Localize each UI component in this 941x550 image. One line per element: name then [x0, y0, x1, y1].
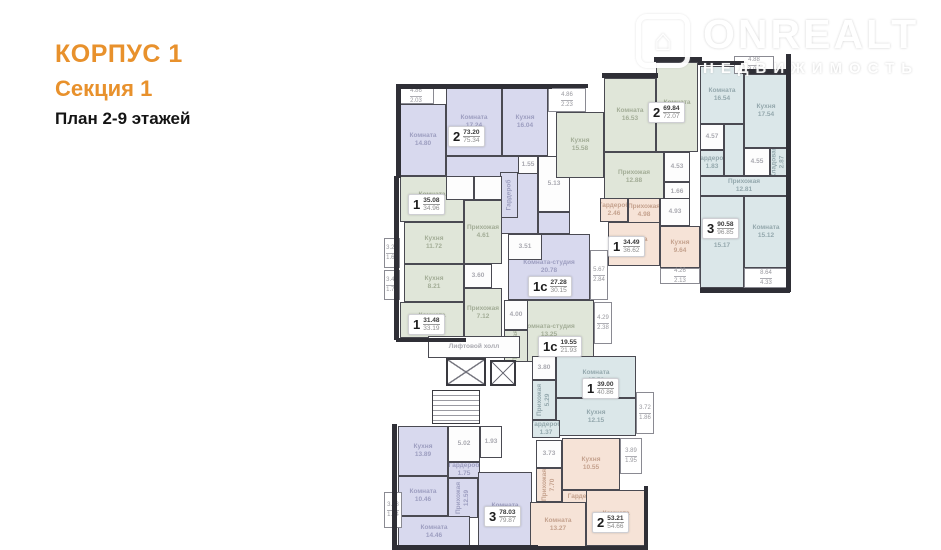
room: [446, 176, 474, 200]
room: Гардероб: [500, 172, 518, 218]
balcony: 4.262.13: [660, 268, 700, 284]
apartment-badge: 273.2075.34: [448, 126, 485, 147]
room: 4.55: [744, 148, 770, 176]
room: Прихожая5.29: [532, 380, 556, 420]
room: Кухня9.64: [660, 226, 700, 268]
room: 4.00: [504, 300, 528, 330]
wall-segment: [396, 545, 538, 550]
apartment-badge: 139.0040.86: [582, 378, 619, 399]
apartment-badge: 1с27.2830.15: [528, 276, 572, 297]
wall-segment: [602, 73, 658, 78]
room: 4.93: [660, 198, 690, 226]
room: Комната15.12: [744, 196, 788, 268]
room: Кухня8.21: [404, 264, 464, 302]
page-title-block: КОРПУС 1 Секция 1 План 2-9 этажей: [55, 40, 190, 129]
apartment-badge: 134.4936.62: [608, 236, 645, 257]
balcony: 4.862.03: [398, 88, 434, 104]
room: Кухня16.04: [502, 88, 548, 156]
building-title: КОРПУС 1: [55, 40, 190, 69]
room: Прихожая7.70: [536, 468, 562, 502]
wall-segment: [544, 84, 588, 88]
room: 1.93: [480, 426, 502, 458]
apartment-badge: 1с19.5521.93: [538, 336, 582, 357]
balcony: 8.644.33: [744, 268, 788, 288]
room: 3.80: [532, 356, 556, 380]
apartment-badge: 135.0834.96: [408, 194, 445, 215]
apartment-badge: 269.8472.07: [648, 102, 685, 123]
room: Кухня11.72: [404, 222, 464, 264]
room: Прихожая4.61: [464, 200, 502, 264]
room: Гардероб2.46: [600, 198, 628, 222]
room: Комната14.80: [400, 104, 446, 176]
balcony: 4.292.38: [594, 302, 612, 344]
room: Комната16.54: [700, 66, 744, 124]
room: 4.57: [700, 124, 724, 150]
floors-subtitle: План 2-9 этажей: [55, 109, 190, 129]
room: 3.51: [508, 234, 542, 260]
room: 5.02: [448, 426, 480, 462]
apartment-badge: 253.2154.66: [592, 512, 629, 533]
room: Комната13.27: [530, 502, 586, 548]
room: Кухня17.54: [744, 74, 788, 148]
room: Кухня15.58: [556, 112, 604, 178]
wall-segment: [644, 486, 648, 548]
room: Комната14.46: [398, 516, 470, 548]
elevator-shaft: [490, 360, 516, 386]
room: Комната15.17: [700, 196, 744, 288]
room: [474, 176, 502, 200]
room: Комната10.46: [398, 476, 448, 516]
room: Кухня10.55: [562, 438, 620, 490]
wall-segment: [528, 546, 648, 550]
room: 4.53: [664, 152, 690, 182]
room: 1.55: [518, 156, 538, 174]
room: Прихожая7.12: [464, 288, 502, 338]
apartment-badge: 131.4833.19: [408, 314, 445, 335]
balcony: 4.862.23: [548, 88, 586, 112]
room: Прихожая12.81: [700, 176, 788, 196]
stairs: [432, 390, 480, 424]
balcony: 3.891.95: [620, 438, 642, 474]
wall-segment: [700, 288, 790, 293]
room: Гардероб1.83: [700, 150, 724, 176]
wall-segment: [654, 57, 702, 62]
floor-plan-page: { "header": { "korpus": "КОРПУС 1", "sek…: [0, 0, 941, 550]
wall-segment: [698, 61, 744, 65]
room: Прихожая4.98: [628, 198, 660, 224]
wall-segment: [742, 69, 790, 74]
wall-segment: [392, 424, 397, 550]
wall-segment: [396, 84, 401, 178]
room: Гардероб1.75: [448, 462, 480, 478]
room: Гардероб1.37: [532, 420, 560, 438]
balcony: 5.672.84: [590, 250, 608, 300]
elevator-shaft: [446, 358, 486, 386]
room: 3.73: [536, 440, 562, 468]
room: Прихожая12.59: [448, 478, 478, 518]
wall-segment: [396, 84, 552, 89]
room: Прихожая12.88: [604, 152, 664, 202]
room: [724, 124, 744, 176]
section-title: Секция 1: [55, 76, 190, 102]
room: 3.60: [464, 264, 492, 288]
wall-segment: [786, 54, 791, 292]
balcony: 3.721.86: [636, 392, 654, 434]
room: Кухня13.89: [398, 426, 448, 476]
apartment-badge: 390.5896.85: [702, 218, 739, 239]
apartment-badge: 378.0379.87: [484, 506, 521, 527]
room: [538, 212, 570, 234]
room: Кухня12.15: [556, 398, 636, 436]
wall-segment: [394, 176, 399, 340]
wall-segment: [396, 338, 466, 342]
